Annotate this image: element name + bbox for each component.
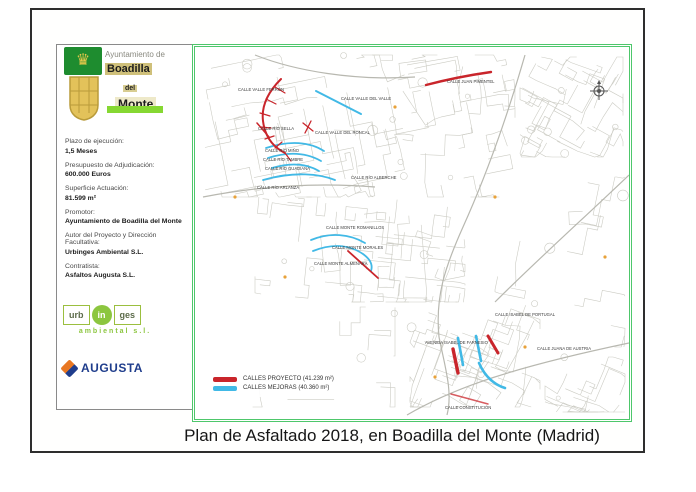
crown-icon: ♛ bbox=[76, 53, 90, 69]
street-label: CALLE MONTE ALMENARA bbox=[314, 261, 368, 266]
map-frame: CALLE VALLE FERRÓN CALLE VALLE DEL VALLE… bbox=[192, 44, 632, 422]
sheet-title: Plan de Asfaltado 2018, en Boadilla del … bbox=[152, 426, 632, 446]
map-markers bbox=[233, 105, 606, 378]
map-legend: CALLES PROYECTO (41.239 m²) CALLES MEJOR… bbox=[208, 370, 339, 397]
legend-swatch-mejoras bbox=[213, 386, 237, 391]
field-label: Promotor: bbox=[65, 209, 190, 216]
street-label: CALLE MONTE MORALES bbox=[332, 245, 383, 250]
legend-label-mejoras: CALLES MEJORAS (40.360 m²) bbox=[243, 385, 329, 391]
street-label: CALLE JUAN PIMENTEL bbox=[447, 79, 495, 84]
augusta-diamond-icon bbox=[60, 359, 78, 377]
logo-green-bar bbox=[107, 106, 163, 113]
street-label: CALLE RÍO MIÑO bbox=[265, 148, 300, 153]
legend-item-proyecto: CALLES PROYECTO (41.239 m²) bbox=[213, 376, 334, 382]
street-map: CALLE VALLE FERRÓN CALLE VALLE DEL VALLE… bbox=[195, 47, 629, 419]
legend-label-proyecto: CALLES PROYECTO (41.239 m²) bbox=[243, 376, 334, 382]
logo-line-ayuntamiento: Ayuntamiento de bbox=[105, 50, 195, 59]
shield-icon bbox=[68, 75, 100, 121]
urbinges-ges: ges bbox=[114, 305, 142, 325]
field-label: Contratista: bbox=[65, 263, 190, 270]
map-area: CALLE VALLE FERRÓN CALLE VALLE DEL VALLE… bbox=[194, 46, 630, 420]
street-label: CALLE ISABEL DE PORTUGAL bbox=[495, 312, 556, 317]
street-label: CALLE JUANA DE AUSTRIA bbox=[537, 346, 591, 351]
street-label: CALLE VALLE DEL VALLE bbox=[341, 96, 391, 101]
field-label: Superficie Actuación: bbox=[65, 185, 190, 192]
field-value: 600.000 Euros bbox=[65, 171, 190, 178]
logo-green-square: ♛ bbox=[64, 47, 102, 75]
logo-line-boadilla: Boadilla bbox=[105, 63, 152, 75]
legend-item-mejoras: CALLES MEJORAS (40.360 m²) bbox=[213, 385, 334, 391]
street-label: CALLE RÍO ALBERCHE bbox=[351, 175, 397, 180]
urbinges-logo: urb in ges ambiental s.l. bbox=[63, 305, 167, 335]
field-value: Urbinges Ambiental S.L. bbox=[65, 249, 190, 256]
info-panel: ♛ Ayuntamiento de Boadilla del Monte Pla… bbox=[56, 44, 197, 410]
street-label: CALLE RÍO GUADIANA bbox=[265, 166, 310, 171]
street-label: CALLE RÍO SELLA bbox=[258, 126, 294, 131]
street-label: CALLE MONTE ROMANILLOS bbox=[326, 225, 384, 230]
field-label: Autor del Proyecto y Dirección Facultati… bbox=[65, 232, 190, 246]
legend-swatch-proyecto bbox=[213, 377, 237, 382]
field-value: 1,5 Meses bbox=[65, 148, 190, 155]
field-value: 81.599 m² bbox=[65, 195, 190, 202]
urbinges-in-circle: in bbox=[92, 305, 112, 325]
street-label: AVENIDA ISABEL DE FARNESIO bbox=[425, 340, 489, 345]
field-value: Ayuntamiento de Boadilla del Monte bbox=[65, 218, 190, 225]
logo-line-del: del bbox=[123, 85, 137, 92]
urbinges-urb: urb bbox=[63, 305, 90, 325]
project-fields: Plazo de ejecución: 1,5 Meses Presupuest… bbox=[65, 131, 190, 279]
street-label: CALLE VALLE DEL RONCAL bbox=[315, 130, 371, 135]
augusta-logo: AUGUSTA bbox=[63, 361, 143, 375]
field-value: Asfaltos Augusta S.L. bbox=[65, 272, 190, 279]
urbinges-subtitle: ambiental s.l. bbox=[63, 328, 167, 335]
plan-sheet: ♛ Ayuntamiento de Boadilla del Monte Pla… bbox=[30, 8, 645, 453]
field-label: Plazo de ejecución: bbox=[65, 138, 190, 145]
street-label: CALLE RÍO ARLANZA bbox=[257, 185, 299, 190]
field-label: Presupuesto de Adjudicación: bbox=[65, 162, 190, 169]
ayuntamiento-logo: ♛ Ayuntamiento de Boadilla del Monte bbox=[57, 45, 196, 127]
augusta-name: AUGUSTA bbox=[81, 361, 143, 375]
street-label: CALLE CONSTITUCIÓN bbox=[445, 405, 491, 410]
logo-text: Ayuntamiento de Boadilla del Monte bbox=[105, 50, 195, 113]
street-label: CALLE RÍO TAMBRE bbox=[263, 157, 303, 162]
street-label: CALLE VALLE FERRÓN bbox=[238, 87, 284, 92]
